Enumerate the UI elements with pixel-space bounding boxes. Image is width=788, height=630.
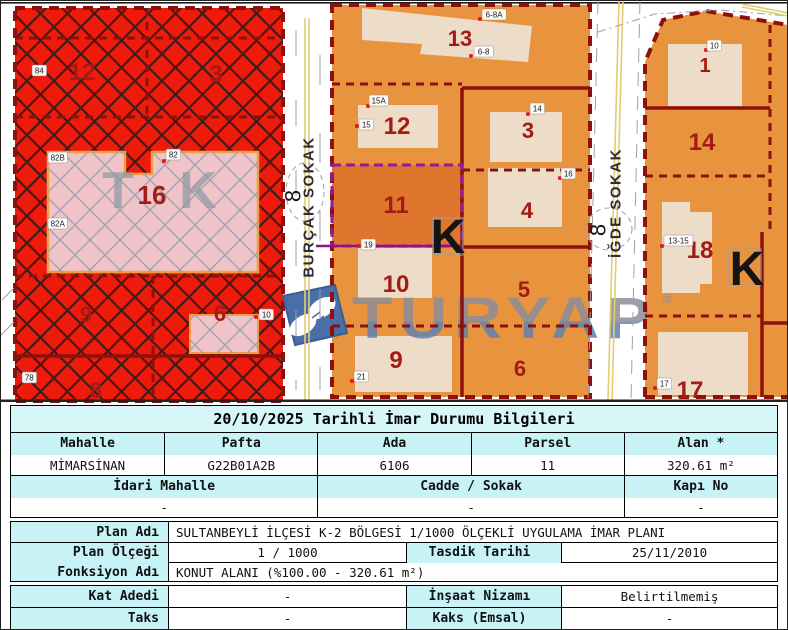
address-dot xyxy=(357,244,361,248)
plan-adi-row: Plan Adı SULTANBEYLİ İLÇESİ K-2 BÖLGESİ … xyxy=(10,521,778,543)
label-tasdik-tarihi: Tasdik Tarihi xyxy=(406,543,561,563)
label-plan-olcegi: Plan Ölçeği xyxy=(11,543,168,563)
kat-adedi-row: Kat Adedi - İnşaat Nizamı Belirtilmemiş xyxy=(10,585,778,608)
label-insaat-nizami: İnşaat Nizamı xyxy=(406,586,561,607)
address-dot xyxy=(526,112,530,116)
table-title: 20/10/2025 Tarihli İmar Durumu Bilgileri xyxy=(10,405,778,433)
label-taks: Taks xyxy=(11,608,168,629)
address-dot xyxy=(355,124,359,128)
street-number-burcak: 8 xyxy=(281,190,306,202)
address-dot xyxy=(350,379,354,383)
address-number: 84 xyxy=(35,67,44,76)
parcel-number: 13 xyxy=(448,26,472,51)
address-number: 16 xyxy=(564,170,573,179)
value-idari-mahalle: - xyxy=(11,498,317,517)
header-mahalle: Mahalle xyxy=(11,433,164,455)
imar-durumu-page: TURYAP ® xyxy=(0,0,788,630)
parcel-number: 4 xyxy=(521,198,534,223)
header-idari-mahalle: İdari Mahalle xyxy=(11,476,317,498)
parcel-number: 17 xyxy=(677,377,704,403)
address-number: 13-15 xyxy=(668,237,689,246)
value-kaks-emsal: - xyxy=(561,608,777,629)
block-letter: K xyxy=(730,243,765,296)
address-dot xyxy=(162,159,166,163)
value-ada: 6106 xyxy=(317,455,470,475)
parcel-number: 5 xyxy=(518,277,530,302)
address-number: 82 xyxy=(169,151,178,160)
map-bottom-border xyxy=(0,400,788,403)
value-pafta: G22B01A2B xyxy=(164,455,317,475)
parcel-number: 1 xyxy=(699,55,710,77)
address-dot xyxy=(660,244,664,248)
address-number: 17 xyxy=(660,380,669,389)
value-alan: 320.61 m² xyxy=(624,455,777,475)
parcel-number: 10 xyxy=(383,271,410,298)
address-number: 6-8A xyxy=(486,11,504,20)
label-kat-adedi: Kat Adedi xyxy=(11,586,168,607)
parcel-number: 12 xyxy=(384,113,411,140)
label-fonksiyon: Fonksiyon Adı xyxy=(11,563,168,581)
header-alan: Alan * xyxy=(624,433,777,455)
cadastral-value-row: MİMARSİNAN G22B01A2B 6106 11 320.61 m² xyxy=(10,454,778,476)
parcel-number: 8 xyxy=(90,378,102,403)
address-number: 21 xyxy=(357,373,366,382)
street-name-burcak: BURÇAK SOKAK xyxy=(301,136,318,277)
value-plan-olcegi: 1 / 1000 xyxy=(168,543,406,563)
parcel-number: 9 xyxy=(389,347,402,374)
address-number: 14 xyxy=(533,105,542,114)
address-value-row: - - - xyxy=(10,497,778,518)
taks-row: Taks - Kaks (Emsal) - xyxy=(10,607,778,630)
address-number: 6-8 xyxy=(478,48,490,57)
street-number-igde: 8 xyxy=(586,224,611,236)
plan-olcegi-row: Plan Ölçeği 1 / 1000 Tasdik Tarihi 25/11… xyxy=(10,542,778,564)
parcel-number: 11 xyxy=(383,192,408,219)
address-number: 82B xyxy=(51,154,65,163)
address-dot xyxy=(254,315,258,319)
parcel-number: 6 xyxy=(214,301,226,326)
value-insaat-nizami: Belirtilmemiş xyxy=(561,586,777,607)
parcel-number: 12 xyxy=(69,59,96,86)
address-dot xyxy=(653,386,657,390)
label-kaks-emsal: Kaks (Emsal) xyxy=(406,608,561,629)
header-cadde-sokak: Cadde / Sokak xyxy=(317,476,623,498)
header-parsel: Parsel xyxy=(471,433,624,455)
block-letter: K xyxy=(431,211,466,264)
watermark-reg: ® xyxy=(663,291,673,306)
address-number: 19 xyxy=(364,241,373,250)
parcel-number: 14 xyxy=(689,129,716,156)
address-number: 10 xyxy=(710,42,719,51)
address-number: 15A xyxy=(372,97,387,106)
parcel-number: 6 xyxy=(514,356,526,381)
block-letter: T xyxy=(102,162,134,220)
value-cadde-sokak: - xyxy=(317,498,623,517)
cadastral-map: TURYAP ® xyxy=(0,0,788,403)
block-letter: K xyxy=(179,162,217,220)
address-number: 78 xyxy=(25,374,34,383)
address-number: 10 xyxy=(262,311,271,320)
address-number: 82A xyxy=(51,220,66,229)
header-ada: Ada xyxy=(317,433,470,455)
address-number: 15 xyxy=(362,121,371,130)
parcel-16-shape xyxy=(48,152,258,272)
value-kat-adedi: - xyxy=(168,586,406,607)
cadastral-header-row: Mahalle Pafta Ada Parsel Alan * xyxy=(10,432,778,456)
address-dot xyxy=(17,380,21,384)
address-dot xyxy=(478,17,482,21)
parcel-number: 9 xyxy=(80,302,92,327)
label-plan-adi: Plan Adı xyxy=(11,522,168,542)
value-taks: - xyxy=(168,608,406,629)
header-pafta: Pafta xyxy=(164,433,317,455)
parcel-number: 3 xyxy=(209,61,222,88)
value-mahalle: MİMARSİNAN xyxy=(11,455,164,475)
street-name-igde: İĞDE SOKAK xyxy=(607,148,625,258)
parcel-number: 3 xyxy=(522,118,534,143)
value-kapi-no: - xyxy=(624,498,777,517)
value-parsel: 11 xyxy=(471,455,624,475)
zoning-info-table: 20/10/2025 Tarihli İmar Durumu Bilgileri… xyxy=(10,405,778,630)
value-tasdik-tarihi: 25/11/2010 xyxy=(561,543,777,563)
value-fonksiyon: KONUT ALANI (%100.00 - 320.61 m²) xyxy=(168,563,777,581)
address-dot xyxy=(469,54,473,58)
map-top-border xyxy=(0,2,788,4)
fonksiyon-row: Fonksiyon Adı KONUT ALANI (%100.00 - 320… xyxy=(10,562,778,582)
value-plan-adi: SULTANBEYLİ İLÇESİ K-2 BÖLGESİ 1/1000 ÖL… xyxy=(168,522,777,542)
address-header-row: İdari Mahalle Cadde / Sokak Kapı No xyxy=(10,475,778,499)
header-kapi-no: Kapı No xyxy=(624,476,777,498)
handshake-icon xyxy=(283,285,347,345)
parcel-number: 16 xyxy=(138,180,167,210)
